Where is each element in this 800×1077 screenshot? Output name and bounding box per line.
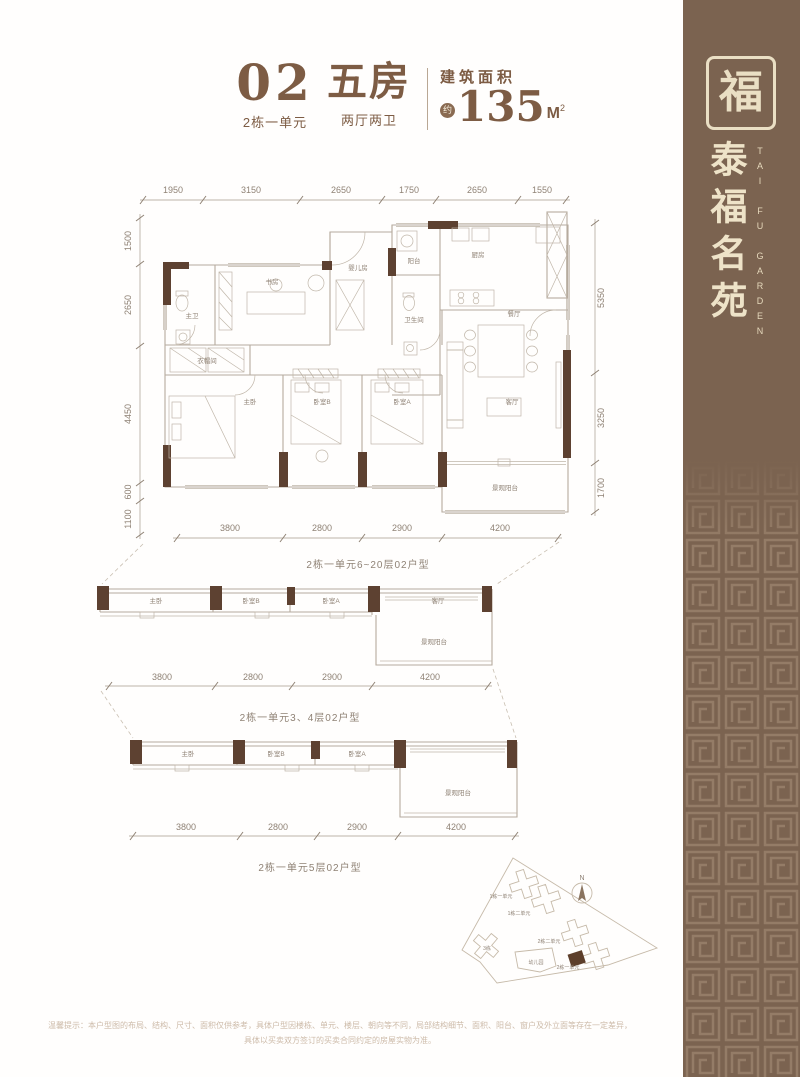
mid-dim-2: 2900 xyxy=(322,672,342,682)
dim-left-2: 4450 xyxy=(123,404,133,424)
dim-left-3: 600 xyxy=(123,484,133,499)
dim-bottom-1: 2800 xyxy=(312,523,332,533)
room-label-bedroom-a: 卧室A xyxy=(393,397,411,406)
low-dim-2: 2900 xyxy=(347,822,367,832)
room-label-balcony-small: 阳台 xyxy=(408,256,421,265)
room-label-kitchen: 厨房 xyxy=(472,250,485,259)
low-label-bedroom-a: 卧室A xyxy=(348,749,366,758)
dim-right-2: 1700 xyxy=(596,478,606,498)
room-label-baby-room: 婴儿房 xyxy=(348,263,368,272)
dim-right-1: 3250 xyxy=(596,408,606,428)
pattern-fade xyxy=(683,450,800,540)
brand-name-en: TAI FU GARDEN xyxy=(755,146,765,341)
low-plan-caption: 2栋一单元5层02户型 xyxy=(258,861,361,874)
mid-label-view-balcony: 景观阳台 xyxy=(421,637,447,646)
floorplan-drawing: 主卫 书房 婴儿房 阳台 厨房 卫生间 餐厅 衣帽间 主卧 卧室B 卧室A 客厅… xyxy=(0,0,680,1077)
mid-dim-0: 3800 xyxy=(152,672,172,682)
compass: N xyxy=(572,875,592,903)
dim-bottom-0: 3800 xyxy=(220,523,240,533)
low-dim-3: 4200 xyxy=(446,822,466,832)
room-label-dining: 餐厅 xyxy=(508,309,522,318)
dim-left-0: 1500 xyxy=(123,231,133,251)
dim-right-0: 5350 xyxy=(596,288,606,308)
site-label-b3: 3栋 xyxy=(483,945,491,952)
site-label-b1u2: 1栋二单元 xyxy=(508,910,531,917)
brochure-page: 02 2栋一单元 五房 两厅两卫 建筑面积 约 135 M 2 xyxy=(0,0,800,1077)
room-label-view-balcony: 景观阳台 xyxy=(492,483,518,492)
main-plan-caption: 2栋一单元6~20层02户型 xyxy=(306,558,429,571)
room-label-master-bed: 主卧 xyxy=(244,397,258,406)
room-label-master-bath: 主卫 xyxy=(186,311,200,320)
fu-seal-glyph: 福 xyxy=(719,71,763,115)
site-label-b1u1: 1栋一单元 xyxy=(490,893,513,900)
room-label-bedroom-b: 卧室B xyxy=(313,397,330,406)
low-dim-1: 2800 xyxy=(268,822,288,832)
mid-label-living: 客厅 xyxy=(432,596,446,605)
mid-dim-1: 2800 xyxy=(243,672,263,682)
dim-top-0: 1950 xyxy=(163,185,183,195)
brand-sidebar: 福 泰福名苑 TAI FU GARDEN xyxy=(683,0,800,1077)
room-label-cloakroom: 衣帽间 xyxy=(197,356,217,365)
maze-pattern xyxy=(683,450,800,1077)
dim-top-1: 3150 xyxy=(241,185,261,195)
site-building-2u2 xyxy=(559,917,592,950)
mid-dim-3: 4200 xyxy=(420,672,440,682)
room-label-study: 书房 xyxy=(266,277,279,286)
mid-label-master-bed: 主卧 xyxy=(150,596,164,605)
room-label-living: 客厅 xyxy=(506,397,520,406)
site-label-kindergarten: 幼儿园 xyxy=(528,959,543,966)
mid-label-bedroom-b: 卧室B xyxy=(242,596,259,605)
low-label-bedroom-b: 卧室B xyxy=(267,749,284,758)
site-building-2u1 xyxy=(580,940,613,973)
mid-label-bedroom-a: 卧室A xyxy=(322,596,340,605)
mid-plan: 主卧 卧室B 卧室A 客厅 景观阳台 3800 2800 2900 4200 2… xyxy=(97,586,492,724)
projection-lines xyxy=(101,542,559,738)
brand-name-cn: 泰福名苑 xyxy=(707,140,744,328)
disclaimer: 温馨提示：本户型图的布局、结构、尺寸、面积仅供参考，具体户型因楼栋、单元、楼层、… xyxy=(40,1018,640,1048)
dim-left-4: 1100 xyxy=(123,509,133,528)
brand-logo-seal: 福 xyxy=(706,56,776,130)
dim-top-2: 2650 xyxy=(331,185,351,195)
dim-top-3: 1750 xyxy=(399,185,419,195)
dim-left-1: 2650 xyxy=(123,295,133,315)
site-label-b2u1: 2栋一单元 xyxy=(557,964,580,971)
site-label-b2u2: 2栋二单元 xyxy=(538,938,561,945)
low-dim-0: 3800 xyxy=(176,822,196,832)
room-label-bathroom: 卫生间 xyxy=(404,315,424,324)
site-plan: 1栋一单元 1栋二单元 3栋 幼儿园 2栋二单元 2栋一单元 N xyxy=(462,858,657,983)
mid-plan-caption: 2栋一单元3、4层02户型 xyxy=(240,711,361,724)
disclaimer-line-1: 温馨提示：本户型图的布局、结构、尺寸、面积仅供参考，具体户型因楼栋、单元、楼层、… xyxy=(40,1018,640,1033)
disclaimer-line-2: 具体以买卖双方签订的买卖合同约定的房屋实物为准。 xyxy=(40,1033,640,1048)
dim-bottom-3: 4200 xyxy=(490,523,510,533)
low-label-view-balcony: 景观阳台 xyxy=(445,788,471,797)
dim-top-5: 1550 xyxy=(532,185,552,195)
dim-bottom-2: 2900 xyxy=(392,523,412,533)
low-plan: 主卧 卧室B 卧室A 景观阳台 3800 2800 2900 4200 2栋一单… xyxy=(129,740,519,874)
dim-top-4: 2650 xyxy=(467,185,487,195)
main-plan-dimensions: 1950 3150 2650 1750 2650 1550 1500 2650 … xyxy=(123,185,606,571)
main-plan: 主卫 书房 婴儿房 阳台 厨房 卫生间 餐厅 衣帽间 主卧 卧室B 卧室A 客厅… xyxy=(163,212,571,514)
compass-north-label: N xyxy=(579,875,584,882)
low-label-master-bed: 主卧 xyxy=(182,749,196,758)
